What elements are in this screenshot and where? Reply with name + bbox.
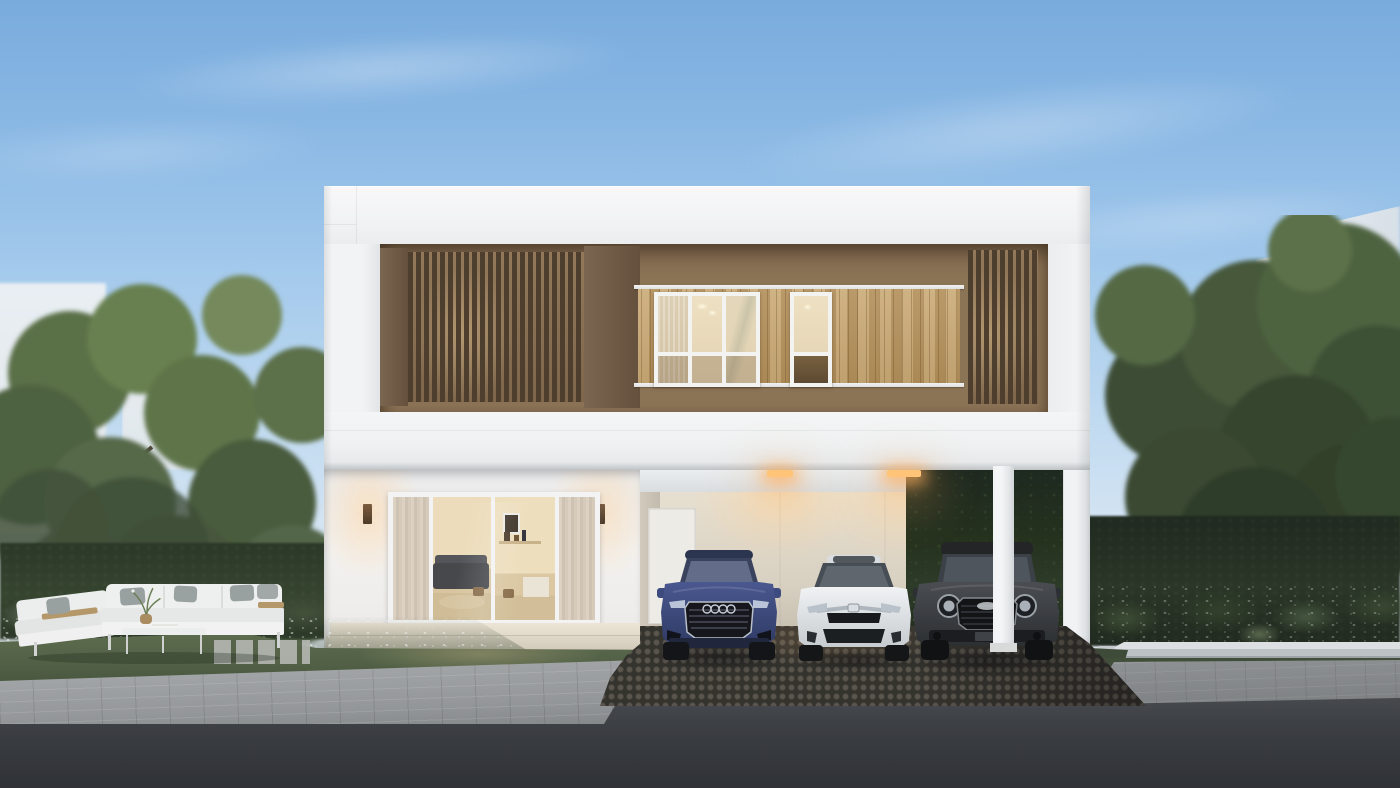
panel-seam — [356, 186, 357, 244]
timber-slat-screen-left — [408, 252, 584, 402]
carport-ceiling-light — [767, 470, 793, 477]
lower-pane-tint — [658, 356, 756, 383]
wall-lamp-left — [363, 504, 372, 524]
window-transom — [658, 352, 756, 356]
slat-frame-pillar — [584, 246, 640, 408]
upper-window-large — [654, 292, 760, 387]
door-glass — [393, 497, 595, 620]
window-mullion — [688, 296, 692, 383]
car-blue-suv — [655, 546, 783, 664]
slab-joint-line — [324, 430, 1090, 431]
carport-column — [993, 466, 1014, 652]
roof-parapet — [324, 186, 1090, 245]
lower-pane-interior — [794, 356, 828, 383]
window-transom — [794, 352, 828, 356]
window-glass — [658, 296, 756, 383]
flower-bed-right — [1095, 584, 1400, 642]
facade-corner-shading — [324, 186, 332, 650]
ceiling-light-glow — [803, 304, 812, 310]
window-glass — [794, 296, 828, 383]
facade-corner-shading — [1076, 186, 1090, 470]
glass-reflection — [398, 502, 600, 625]
upper-window-narrow — [790, 292, 832, 387]
slat-frame-pillar — [380, 248, 408, 406]
upper-wall-return-left — [324, 244, 380, 412]
outdoor-sofa-set — [14, 576, 284, 664]
window-mullion — [722, 296, 726, 383]
sidewalk-right — [1096, 660, 1400, 704]
ceiling-light-glow — [696, 303, 708, 310]
car-white-sedan — [793, 553, 915, 665]
car-charcoal-crossover — [910, 540, 1064, 664]
glass-sliding-door — [388, 492, 600, 625]
ceiling-light-glow — [708, 310, 717, 316]
upper-floor-recess — [380, 244, 1048, 412]
timber-slat-screen-right — [968, 250, 1038, 404]
rendering-scene — [0, 0, 1400, 788]
carport-corner-pier — [1063, 470, 1090, 650]
carport-ceiling-light — [887, 470, 921, 477]
slab-shadow — [324, 462, 1090, 470]
